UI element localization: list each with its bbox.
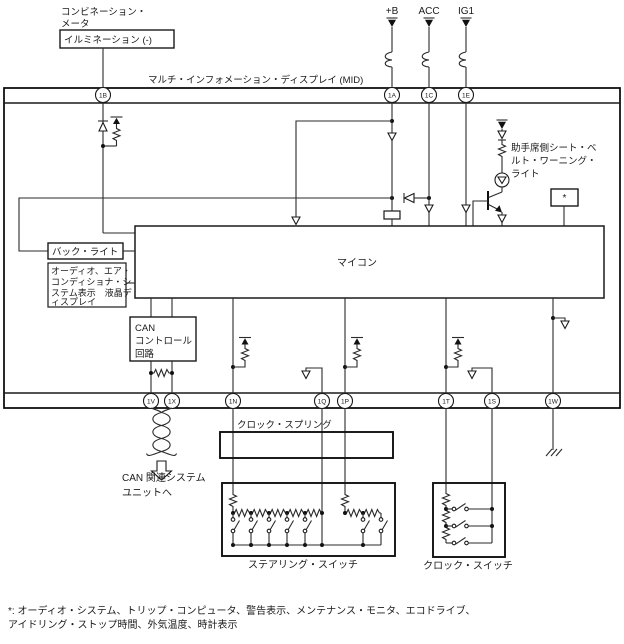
- combination-meter-label-2: メータ: [61, 19, 90, 30]
- can-label-3: 回路: [135, 348, 155, 360]
- connector-1e: 1E: [459, 88, 474, 103]
- connector-1p: 1P: [338, 394, 353, 409]
- svg-text:1X: 1X: [168, 399, 177, 406]
- seatbelt-label-3: ライト: [511, 169, 540, 180]
- svg-text:1N: 1N: [229, 399, 238, 406]
- power-label-ig1: IG1: [458, 6, 475, 17]
- connector-1n: 1N: [226, 394, 241, 409]
- steering-switch-label: ステアリング・スイッチ: [248, 558, 358, 571]
- svg-text:1T: 1T: [442, 399, 450, 406]
- asterisk-label: *: [563, 193, 567, 204]
- wiring-diagram: コンビネーション・ メータ イルミネーション (-) +B ACC IG1 マル…: [0, 0, 624, 644]
- svg-text:1Q: 1Q: [318, 399, 327, 406]
- can-label-1: CAN: [135, 323, 155, 334]
- mid-title: マルチ・インフォメーション・ディスプレイ (MID): [148, 74, 363, 86]
- svg-text:1A: 1A: [388, 93, 397, 100]
- clock-switch-label: クロック・スイッチ: [423, 560, 513, 572]
- background: [0, 0, 624, 644]
- can-destination-label-1: CAN 関連システム: [122, 471, 206, 484]
- svg-text:1V: 1V: [147, 399, 156, 406]
- connector-1b: 1B: [96, 88, 111, 103]
- lamp-icon: [495, 173, 509, 187]
- seatbelt-label-2: ルト・ワーニング・: [511, 155, 597, 167]
- micom-box: マイコン: [135, 226, 604, 298]
- lcd-label-4: ィスプレイ: [51, 297, 96, 307]
- power-label-acc: ACC: [418, 6, 439, 17]
- combination-meter-label-1: コンビネーション・: [61, 7, 146, 18]
- micom-label: マイコン: [337, 258, 377, 269]
- footnote-line-2: アイドリング・ストップ時間、外気温度、時計表示: [8, 618, 238, 631]
- connector-1c: 1C: [422, 88, 437, 103]
- can-label-2: コントロール: [135, 336, 193, 347]
- wiring-diagram-page: コンビネーション・ メータ イルミネーション (-) +B ACC IG1 マル…: [0, 0, 624, 644]
- connector-1q: 1Q: [315, 394, 330, 409]
- clock-spring-label: クロック・スプリング: [237, 419, 332, 431]
- lcd-label-2: コンディショナ・シ: [51, 276, 131, 287]
- can-destination-label-2: ユニットへ: [122, 488, 172, 499]
- connector-1w: 1W: [546, 394, 561, 409]
- lcd-box: オーディオ、エア・ コンディショナ・シ ステム表示 液晶デ ィスプレイ: [48, 263, 135, 307]
- svg-text:1E: 1E: [462, 93, 471, 100]
- svg-text:1P: 1P: [341, 399, 349, 406]
- connector-1s: 1S: [485, 394, 500, 409]
- connector-1t: 1T: [439, 394, 454, 409]
- backlight-label: バック・ライト: [52, 247, 118, 258]
- svg-text:1S: 1S: [488, 399, 497, 406]
- svg-text:1B: 1B: [99, 93, 107, 100]
- lcd-label-1: オーディオ、エア・: [51, 265, 131, 276]
- backlight-box: バック・ライト: [48, 243, 135, 259]
- inline-component-box: [384, 211, 400, 219]
- svg-text:1W: 1W: [548, 399, 559, 406]
- connector-1x: 1X: [165, 394, 180, 409]
- seatbelt-label-1: 助手席側シート・ベ: [511, 142, 597, 154]
- power-label-b: +B: [386, 6, 399, 17]
- illumination-label: イルミネーション (-): [64, 35, 152, 46]
- svg-text:1C: 1C: [425, 93, 434, 100]
- connector-1a: 1A: [385, 88, 400, 103]
- footnote-line-1: *: オーディオ・システム、トリップ・コンピュータ、警告表示、メンテナンス・モニ…: [8, 604, 475, 617]
- connector-1v: 1V: [144, 394, 159, 409]
